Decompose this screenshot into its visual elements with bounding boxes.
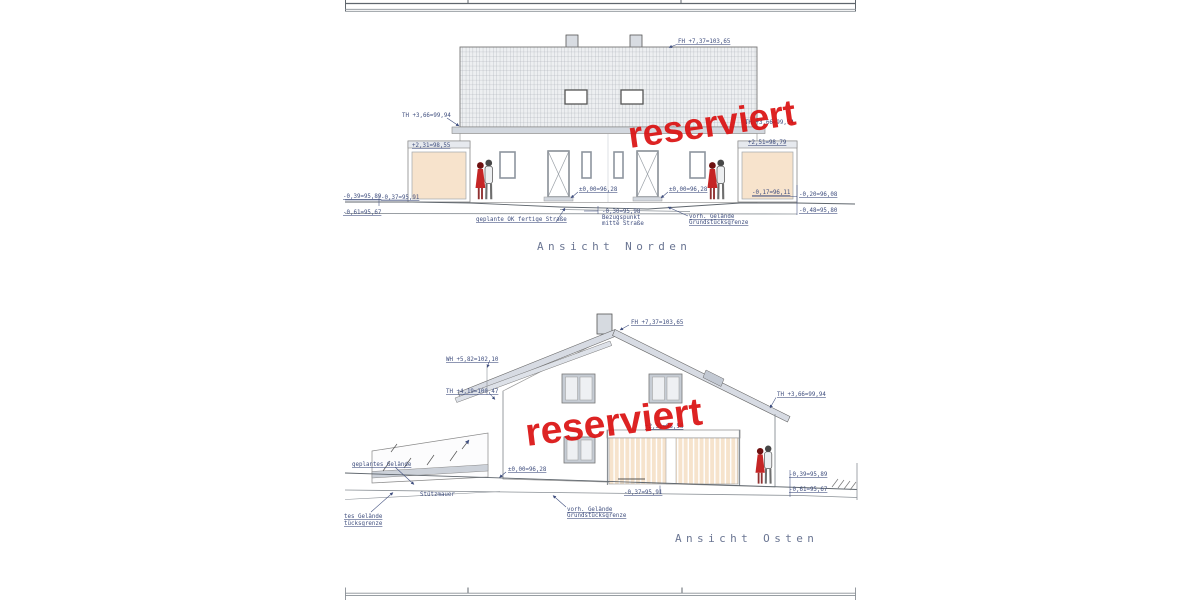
- title-block-top-edge: [345, 0, 856, 12]
- chimney: [630, 35, 642, 48]
- label-retaining-wall: Stützmauer: [420, 492, 455, 498]
- title-ansicht-osten: Ansicht Osten: [675, 532, 818, 545]
- garage-door: [412, 152, 466, 199]
- label-cut-1: tes Gelände: [344, 514, 383, 520]
- title-ansicht-norden: Ansicht Norden: [537, 240, 691, 253]
- label-zero-right: ±0,00=96,28: [669, 187, 708, 193]
- label-refpoint-2: mitte Straße: [602, 221, 644, 227]
- window: [690, 152, 705, 178]
- drawing-sheet: TH +3,66=99,94 FH +7,37=103,65 TH +3,66=…: [0, 0, 1200, 600]
- label-garage-left: +2,31=98,55: [412, 143, 451, 149]
- east-elevation: FH +7,37=103,65 WH +5,82=102,10 TH +4,19…: [344, 314, 857, 545]
- label-m061-east: -0,61=95,67: [789, 487, 828, 493]
- north-elevation: TH +3,66=99,94 FH +7,37=103,65 TH +3,66=…: [343, 35, 855, 253]
- label-m039-east: -0,39=95,89: [789, 472, 828, 478]
- label-fh-north: FH +7,37=103,65: [678, 39, 731, 45]
- label-garage-right: +2,51=98,79: [748, 140, 787, 146]
- label-wh-east: WH +5,82=102,10: [446, 357, 499, 363]
- label-zero-left: ±0,00=96,28: [579, 187, 618, 193]
- label-th-right-east: TH +3,66=99,94: [777, 392, 826, 398]
- skylight: [565, 90, 587, 104]
- entrance-door: [633, 151, 662, 201]
- ground-line-north: [345, 202, 855, 209]
- label-m048-north: -0,48=95,80: [799, 208, 838, 214]
- window-pair: [562, 374, 595, 403]
- entrance-door: [544, 151, 573, 201]
- label-terrain-east-2: Grundstücksgrenze: [567, 513, 627, 519]
- label-cut-2: tücksgrenze: [344, 521, 383, 527]
- label-m037-north: -0,37=95,91: [381, 195, 420, 201]
- label-terrain-north-2: Grundstücksgrenze: [689, 220, 749, 226]
- chimney: [597, 314, 612, 334]
- window: [500, 152, 515, 178]
- window: [614, 152, 623, 178]
- label-m039-north: -0,39=95,89: [343, 194, 382, 200]
- label-m037-east: -0,37=95,91: [624, 490, 663, 496]
- label-zero-east: ±0,00=96,28: [508, 467, 547, 473]
- garage-left: [408, 141, 470, 202]
- window: [582, 152, 591, 178]
- title-block-bottom-edge: [345, 588, 856, 600]
- label-m020-north: -0,20=96,08: [799, 192, 838, 198]
- label-planned-ground: geplantes Gelände: [352, 462, 412, 468]
- label-th-left-east: TH +4,19=100,47: [446, 389, 499, 395]
- elevation-drawing-canvas: TH +3,66=99,94 FH +7,37=103,65 TH +3,66=…: [0, 0, 1200, 600]
- label-m017-north: -0,17=96,11: [752, 190, 791, 196]
- skylight: [621, 90, 643, 104]
- label-m061-north: -0,61=95,67: [343, 210, 382, 216]
- chimney: [566, 35, 578, 48]
- label-th-left-north: TH +3,66=99,94: [402, 113, 451, 119]
- label-fh-east: FH +7,37=103,65: [631, 320, 684, 326]
- label-street: geplante OK fertige Straße: [476, 217, 567, 223]
